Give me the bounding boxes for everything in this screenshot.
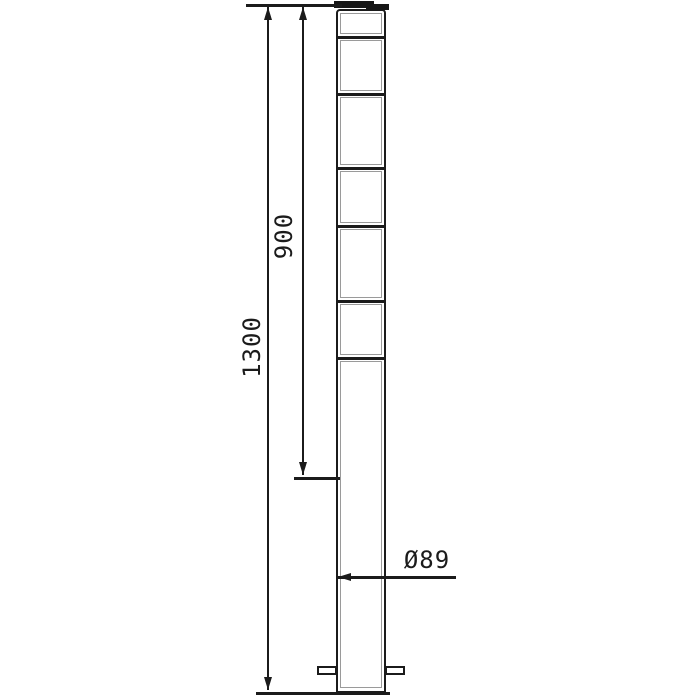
post-segment	[340, 171, 382, 223]
arrowhead-up-icon	[299, 7, 307, 20]
dimension-label-total-length: 1300	[240, 307, 264, 387]
extension-line-top	[246, 4, 342, 7]
post-segment	[340, 13, 382, 34]
arrowhead-down-icon	[299, 462, 307, 475]
band-separator-line	[336, 300, 386, 303]
arrowhead-up-icon	[264, 7, 272, 20]
post-segment	[340, 304, 382, 355]
dimension-label-above-ground: 900	[272, 196, 296, 276]
arrowhead-left-icon	[338, 573, 351, 581]
extension-line-900	[294, 477, 340, 480]
technical-drawing-canvas: 1300 900 Ø89	[0, 0, 700, 700]
arrowhead-down-icon	[264, 677, 272, 690]
anchor-flange-right	[385, 666, 405, 675]
diameter-leader-line	[338, 576, 456, 579]
band-separator-line	[336, 225, 386, 228]
dimension-line-1300	[267, 7, 270, 690]
post-segment	[340, 97, 382, 165]
band-separator-line	[336, 357, 386, 360]
post-segment	[340, 40, 382, 91]
dimension-label-diameter: Ø89	[387, 548, 467, 572]
anchor-flange-left	[317, 666, 337, 675]
dimension-line-900	[302, 7, 305, 475]
post-shaft-segment	[340, 361, 382, 688]
post-cap	[366, 4, 389, 11]
extension-line-bottom	[256, 692, 390, 696]
band-separator-line	[336, 93, 386, 96]
post-segment	[340, 229, 382, 298]
band-separator-line	[336, 36, 386, 39]
band-separator-line	[336, 167, 386, 170]
